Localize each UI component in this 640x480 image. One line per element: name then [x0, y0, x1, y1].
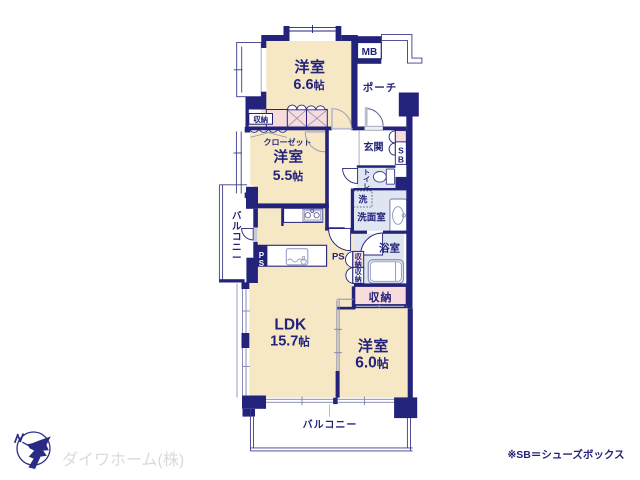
svg-text:収: 収 — [355, 252, 363, 261]
svg-text:※SB＝シューズボックス: ※SB＝シューズボックス — [507, 448, 624, 461]
svg-text:15.7帖: 15.7帖 — [270, 334, 310, 350]
svg-text:洋室: 洋室 — [294, 58, 325, 76]
svg-text:6.0帖: 6.0帖 — [355, 355, 389, 372]
svg-text:洗面室: 洗面室 — [357, 212, 386, 224]
svg-text:バルコニー: バルコニー — [303, 419, 358, 431]
svg-text:B: B — [398, 155, 404, 165]
svg-text:6.6帖: 6.6帖 — [293, 77, 324, 93]
svg-text:ル: ル — [232, 222, 242, 233]
svg-text:S: S — [259, 259, 265, 268]
svg-text:洋室: 洋室 — [358, 337, 389, 355]
svg-text:洗: 洗 — [358, 193, 367, 204]
svg-text:玄関: 玄関 — [364, 141, 384, 154]
svg-text:ダイワホーム(株): ダイワホーム(株) — [62, 451, 184, 469]
svg-text:納: 納 — [355, 260, 362, 269]
svg-text:ト: ト — [363, 169, 370, 177]
svg-text:PS: PS — [332, 252, 345, 263]
svg-text:バ: バ — [232, 210, 242, 222]
svg-text:ー: ー — [232, 253, 242, 264]
svg-text:MB: MB — [362, 47, 378, 58]
svg-text:納: 納 — [355, 275, 362, 284]
svg-text:収納: 収納 — [369, 290, 393, 304]
svg-text:クローゼット: クローゼット — [264, 137, 312, 147]
svg-text:洋室: 洋室 — [274, 148, 304, 166]
svg-text:LDK: LDK — [274, 317, 307, 334]
svg-text:収: 収 — [355, 267, 363, 276]
svg-text:コ: コ — [232, 232, 242, 243]
svg-text:ポーチ: ポーチ — [363, 81, 398, 94]
svg-text:浴室: 浴室 — [379, 242, 400, 255]
svg-text:収納: 収納 — [253, 114, 268, 124]
svg-text:イ: イ — [363, 176, 370, 184]
svg-text:ニ: ニ — [232, 243, 242, 254]
